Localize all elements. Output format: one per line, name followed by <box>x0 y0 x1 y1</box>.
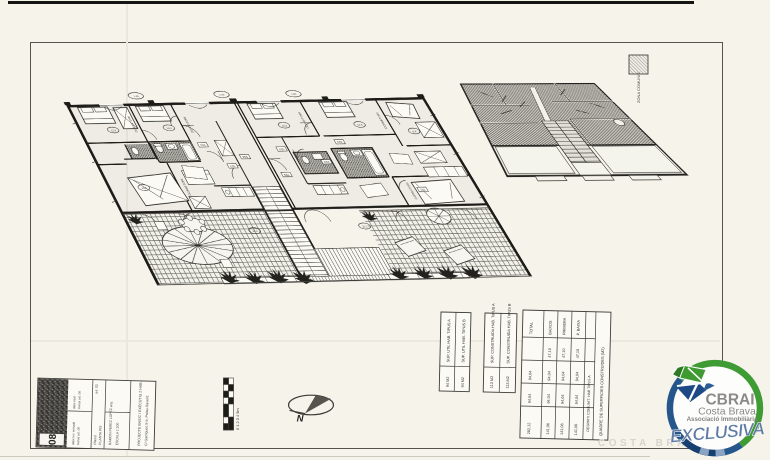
svg-text:marsa set. 08: marsa set. 08 <box>76 427 81 446</box>
svg-text:47,10: 47,10 <box>562 348 566 358</box>
svg-text:113 M2: 113 M2 <box>490 376 494 388</box>
svg-text:Planol: Planol <box>93 435 97 445</box>
svg-text:data nov. entrada: data nov. entrada <box>71 422 76 446</box>
svg-text:P. BAIXA: P. BAIXA <box>576 320 580 336</box>
svg-text:141,06: 141,06 <box>574 424 578 436</box>
svg-text:47,10: 47,10 <box>548 348 552 358</box>
svg-text:94 M2: 94 M2 <box>461 377 465 388</box>
svg-text:TOTAL: TOTAL <box>528 321 533 334</box>
svg-text:282,12: 282,12 <box>527 423 531 435</box>
svg-text:ZONA COMUNIT.: ZONA COMUNIT. <box>636 72 641 103</box>
svg-text:94,04: 94,04 <box>528 371 532 381</box>
svg-text:BAIXOS: BAIXOS <box>548 320 552 335</box>
svg-text:94,04: 94,04 <box>547 394 551 404</box>
svg-text:ESCALA 1:100: ESCALA 1:100 <box>115 422 120 445</box>
svg-text:94,04: 94,04 <box>547 371 551 381</box>
svg-text:0 1 2 3 4 5m: 0 1 2 3 4 5m <box>235 408 240 430</box>
svg-text:PLANTA PIS: PLANTA PIS <box>98 425 103 445</box>
svg-text:47,10: 47,10 <box>576 349 580 359</box>
svg-text:N: N <box>297 414 305 425</box>
svg-text:113 M2: 113 M2 <box>506 376 510 388</box>
svg-text:141,06: 141,06 <box>546 423 550 435</box>
svg-text:marsa set. 08: marsa set. 08 <box>77 391 82 410</box>
svg-text:94,04: 94,04 <box>561 394 565 404</box>
svg-text:94,04: 94,04 <box>575 372 579 382</box>
svg-text:PRIMERA: PRIMERA <box>562 317 566 335</box>
svg-text:94,04: 94,04 <box>561 371 565 381</box>
svg-text:94,04: 94,04 <box>528 394 532 404</box>
svg-text:94,04: 94,04 <box>575 395 579 405</box>
svg-text:94 M2: 94 M2 <box>446 377 450 388</box>
svg-text:08: 08 <box>48 433 59 445</box>
svg-text:a4: 02: a4: 02 <box>95 384 99 394</box>
svg-text:data visat: data visat <box>72 396 76 409</box>
svg-text:141,06: 141,06 <box>560 423 564 435</box>
